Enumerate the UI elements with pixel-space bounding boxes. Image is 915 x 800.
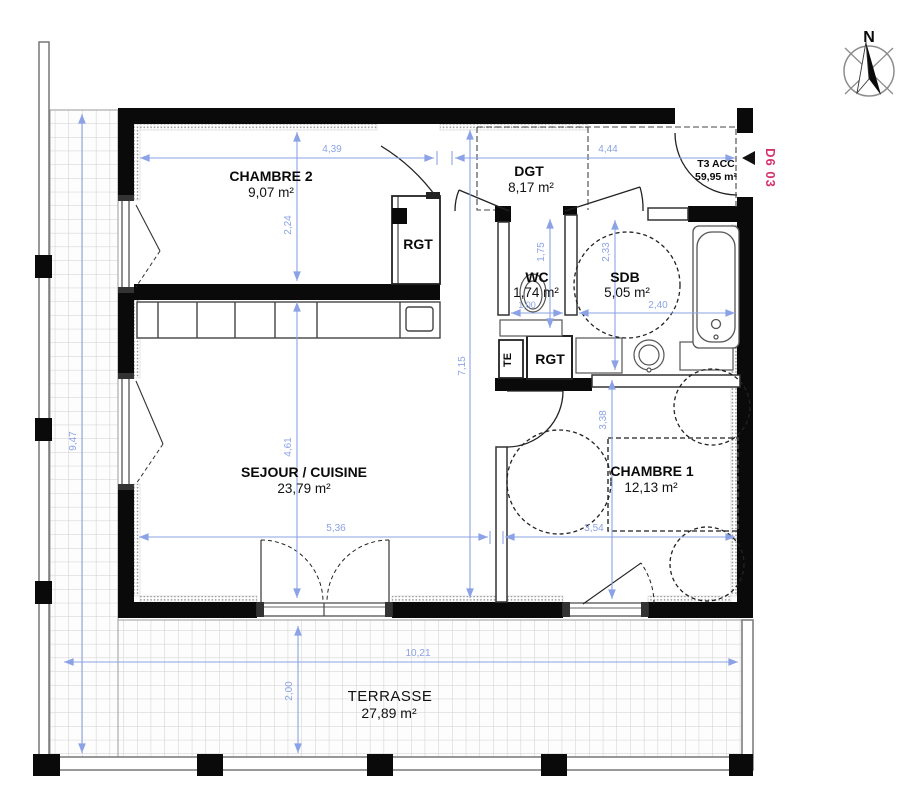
dim-wc-profondeur: 1,75 bbox=[536, 242, 547, 262]
dim-sdb-profondeur: 2,33 bbox=[601, 242, 612, 262]
terrace bbox=[33, 42, 753, 776]
dim-wc-largeur: 1,00 bbox=[518, 300, 536, 310]
room-area-chambre1: 12,13 m² bbox=[624, 480, 678, 495]
wall-bottom-3 bbox=[648, 602, 753, 618]
terrace-railing-right bbox=[742, 620, 753, 757]
door-chambre2 bbox=[381, 146, 437, 198]
terrace-railing-bottom bbox=[39, 757, 753, 770]
dim-interieur-hauteur: 7,15 bbox=[457, 356, 468, 376]
french-door-sejour bbox=[257, 540, 392, 617]
wall-wc-west bbox=[498, 222, 509, 315]
floor-plan-canvas: 4,39 4,44 5,36 3,54 1,00 2,40 10,21 2,24… bbox=[0, 0, 915, 800]
room-name-chambre2: CHAMBRE 2 bbox=[229, 168, 312, 184]
wall-chambre1-north bbox=[592, 375, 740, 387]
kitchen-sink bbox=[406, 307, 433, 331]
wall-left-3 bbox=[118, 484, 134, 602]
dim-terrasse-cote: 9,47 bbox=[68, 431, 79, 451]
door-wc bbox=[455, 190, 509, 211]
dim-chambre1-profondeur: 3,38 bbox=[598, 410, 609, 430]
room-name-terrasse: TERRASSE bbox=[348, 688, 433, 705]
floor-plan: 4,39 4,44 5,36 3,54 1,00 2,40 10,21 2,24… bbox=[0, 0, 915, 800]
fixtures bbox=[137, 192, 750, 601]
room-name-sejour: SEJOUR / CUISINE bbox=[241, 464, 367, 480]
wall-left-1 bbox=[118, 108, 134, 200]
compass-north-label: N bbox=[863, 29, 875, 46]
dim-entree-largeur: 4,44 bbox=[598, 144, 618, 155]
wall-left-2 bbox=[118, 287, 134, 378]
unit-total-area: 59,95 m² bbox=[695, 171, 738, 183]
wall-top-right-corner bbox=[737, 108, 753, 133]
room-area-terrasse: 27,89 m² bbox=[361, 705, 417, 721]
terrace-tiles-left bbox=[50, 110, 118, 757]
door-chambre1 bbox=[507, 391, 563, 447]
wall-bottom-2 bbox=[392, 602, 563, 618]
unit-code: D6 03 bbox=[763, 148, 778, 188]
room-name-rgt-chambre2: RGT bbox=[403, 236, 433, 252]
dim-terrasse-profondeur: 2,00 bbox=[284, 681, 295, 701]
dim-chambre1-largeur: 3,54 bbox=[584, 523, 604, 534]
dim-sejour-profondeur: 4,61 bbox=[283, 437, 294, 457]
wall-top bbox=[118, 108, 675, 124]
room-name-chambre1: CHAMBRE 1 bbox=[610, 463, 693, 479]
compass-north-icon: N bbox=[844, 29, 894, 96]
room-name-dgt: DGT bbox=[514, 163, 544, 179]
dim-chambre2-largeur: 4,39 bbox=[322, 144, 342, 155]
entrance-marker-icon bbox=[742, 151, 755, 165]
wall-sdb-door-side bbox=[648, 208, 688, 220]
wall-bottom-1 bbox=[118, 602, 257, 618]
room-area-wc: 1,74 m² bbox=[513, 285, 559, 300]
wall-chambre1-west bbox=[496, 447, 507, 602]
room-name-wc: WC bbox=[525, 269, 548, 285]
dim-sejour-largeur: 5,36 bbox=[326, 523, 346, 534]
kitchen-counter bbox=[137, 302, 440, 338]
room-area-chambre2: 9,07 m² bbox=[248, 185, 294, 200]
room-area-dgt: 8,17 m² bbox=[508, 180, 554, 195]
room-name-sdb: SDB bbox=[610, 269, 640, 285]
wc-shelf bbox=[500, 320, 562, 336]
room-name-te: TE bbox=[502, 353, 514, 367]
bathtub bbox=[693, 226, 739, 348]
dim-terrasse-largeur: 10,21 bbox=[405, 648, 430, 659]
wall-wc-sdb bbox=[565, 215, 577, 315]
wall-sdb-top bbox=[688, 206, 737, 222]
room-area-sdb: 5,05 m² bbox=[604, 285, 650, 300]
window-chambre2 bbox=[118, 195, 160, 293]
dim-chambre2-profondeur: 2,24 bbox=[283, 215, 294, 235]
window-chambre1 bbox=[563, 563, 654, 617]
window-sejour bbox=[118, 373, 163, 490]
door-sdb bbox=[565, 187, 643, 211]
room-name-rgt-couloir: RGT bbox=[535, 351, 565, 367]
terrace-railing-left bbox=[39, 42, 49, 771]
unit-type-label: T3 ACC bbox=[697, 158, 735, 170]
wall-chambre2-sejour bbox=[134, 284, 440, 300]
room-area-sejour: 23,79 m² bbox=[277, 481, 331, 496]
dim-sdb-largeur: 2,40 bbox=[648, 300, 668, 311]
